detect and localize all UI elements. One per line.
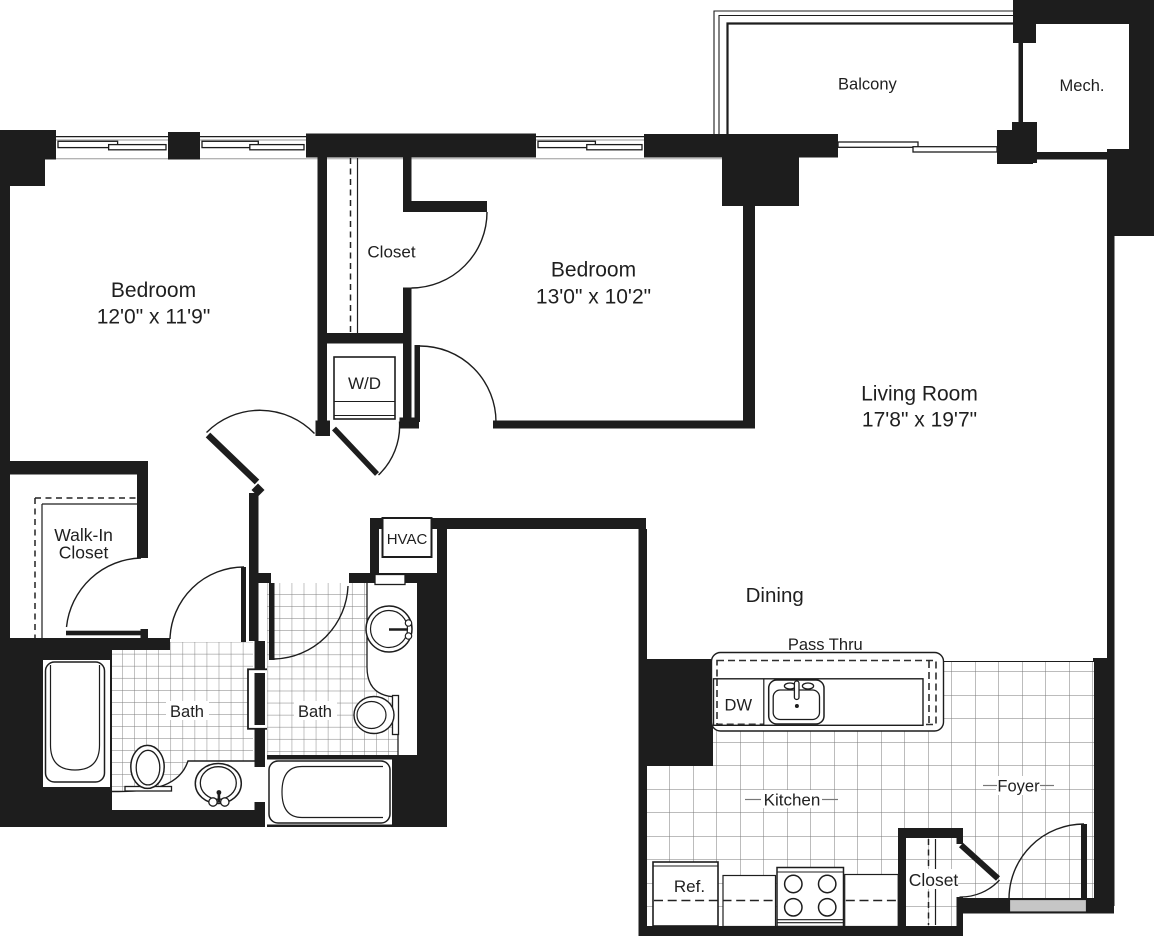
svg-text:12'0" x 11'9": 12'0" x 11'9" (97, 306, 211, 329)
svg-text:Closet: Closet (367, 243, 415, 262)
svg-text:DW: DW (725, 697, 753, 715)
svg-text:Closet: Closet (909, 870, 959, 890)
svg-text:Foyer: Foyer (997, 778, 1040, 796)
svg-text:Living Room: Living Room (861, 383, 978, 406)
svg-text:Bath: Bath (170, 703, 204, 721)
svg-text:Balcony: Balcony (838, 76, 897, 94)
svg-text:13'0" x 10'2": 13'0" x 10'2" (536, 286, 651, 309)
svg-text:Bedroom: Bedroom (111, 279, 196, 302)
svg-text:Mech.: Mech. (1060, 77, 1105, 95)
svg-text:Dining: Dining (746, 584, 804, 607)
svg-text:W/D: W/D (348, 374, 381, 393)
svg-text:Bath: Bath (298, 703, 332, 721)
svg-text:Pass Thru: Pass Thru (788, 636, 863, 654)
svg-text:Bedroom: Bedroom (551, 259, 636, 282)
svg-text:Closet: Closet (59, 543, 109, 563)
svg-text:HVAC: HVAC (387, 531, 428, 548)
svg-text:17'8" x 19'7": 17'8" x 19'7" (862, 409, 977, 432)
svg-text:Kitchen: Kitchen (764, 791, 821, 810)
svg-text:Ref.: Ref. (674, 877, 705, 896)
